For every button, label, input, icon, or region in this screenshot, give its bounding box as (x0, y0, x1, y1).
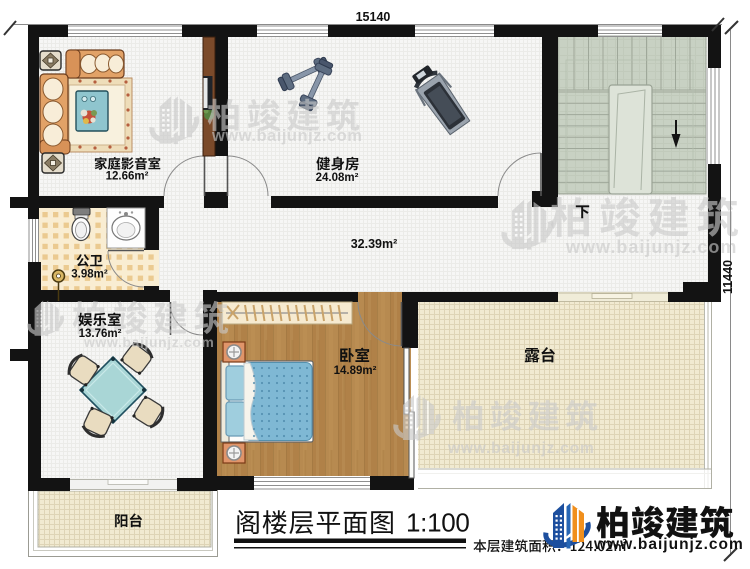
svg-text:www.baijunjz.com: www.baijunjz.com (211, 127, 362, 145)
svg-text:1:100: 1:100 (406, 508, 470, 538)
svg-text:www.baijunjz.com: www.baijunjz.com (447, 440, 595, 457)
svg-text:12.66m²: 12.66m² (106, 171, 149, 183)
svg-text:15140: 15140 (356, 10, 391, 24)
svg-text:13.76m²: 13.76m² (79, 328, 122, 340)
svg-text:32.39m²: 32.39m² (351, 237, 398, 251)
svg-text:www.baijunjz.com: www.baijunjz.com (565, 237, 737, 257)
svg-text:14.89m²: 14.89m² (334, 365, 377, 377)
svg-text:11440: 11440 (721, 260, 735, 294)
svg-text:www.baijunjz.com: www.baijunjz.com (593, 536, 744, 553)
svg-text:3.98m²: 3.98m² (71, 269, 108, 281)
svg-text:24.08m²: 24.08m² (316, 172, 359, 184)
